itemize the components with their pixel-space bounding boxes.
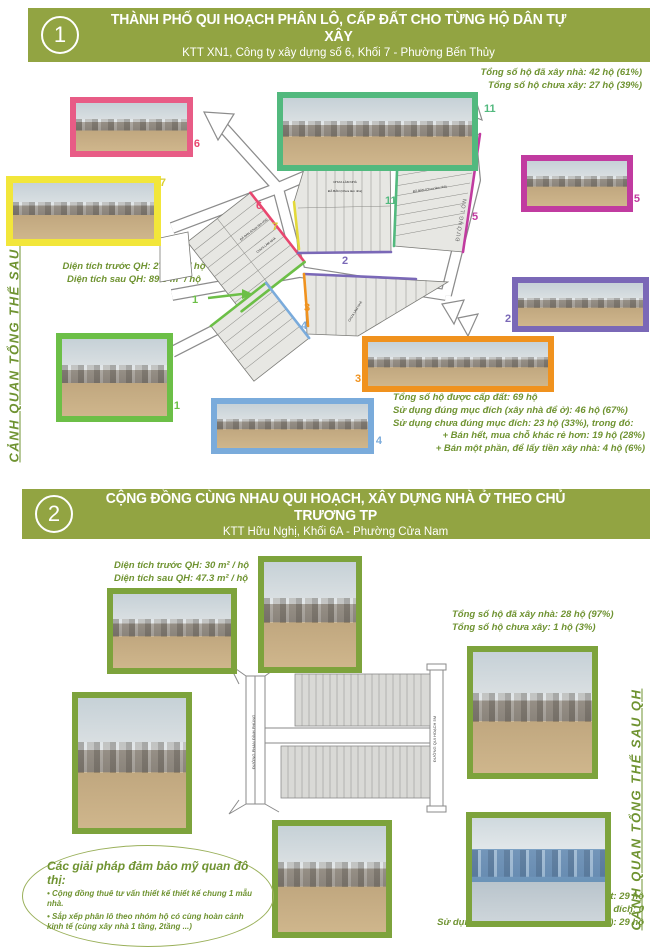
section2-built-stats: Tổng số hộ đã xây nhà: 28 hộ (97%) Tổng … <box>452 609 650 635</box>
photo-5-number: 5 <box>634 194 640 205</box>
photo-6-image <box>76 103 187 151</box>
photo-blue-building <box>466 812 611 927</box>
section1-side-caption: CẢNH QUAN TỔNG THỂ SAU QH <box>7 212 22 472</box>
map-marker-7: 7 <box>272 221 278 233</box>
map-marker-6: 6 <box>256 200 262 212</box>
stat-line: Tổng số hộ chưa xây: 1 hộ (3%) <box>452 622 650 635</box>
photo-11 <box>277 92 478 171</box>
map-marker-11: 11 <box>385 195 397 207</box>
photo-blue-building-image <box>472 818 605 921</box>
photo-6: 6 <box>70 97 193 157</box>
photo-house-before-image <box>113 594 231 668</box>
photo-house-flag-image <box>278 826 386 932</box>
photo-2: 2 <box>512 277 649 332</box>
callout-bullet: Sắp xếp phân lô theo nhóm hộ có cùng hoà… <box>47 912 255 933</box>
diagram-left-road-label: ĐƯỜNG PHAN ĐÌNH PHÙNG <box>251 715 256 769</box>
photo-7-number: 7 <box>160 178 166 189</box>
photo-house-before <box>107 588 237 674</box>
photo-man-balcony-image <box>473 652 592 773</box>
callout-bullet: Cộng đồng thuê tư vấn thiết kế thiết kế … <box>47 889 255 910</box>
section1-built-stats: Tổng số hộ đã xây nhà: 42 hộ (61%) Tổng … <box>380 67 642 93</box>
section1-subtitle: KTT XN1, Công ty xây dựng số 6, Khối 7 -… <box>79 47 598 59</box>
callout-title: Các giải pháp đảm bảo mỹ quan đô thị: <box>47 859 255 887</box>
photo-street-motorbikes <box>258 556 362 673</box>
photo-3: 3 <box>362 336 554 392</box>
photo-man-balcony <box>467 646 598 779</box>
photo-3-image <box>368 342 548 386</box>
section2-number-badge: 2 <box>35 495 73 533</box>
photo-2-image <box>518 283 643 326</box>
map-marker-2: 2 <box>342 255 348 267</box>
photo-3-number: 3 <box>355 374 361 385</box>
photo-4: 4 <box>211 398 374 454</box>
planning-poster: 1 THÀNH PHỐ QUI HOẠCH PHÂN LÔ, CẤP ĐẤT C… <box>0 0 650 952</box>
photo-4-image <box>217 404 368 448</box>
photo-5-image <box>527 161 627 206</box>
map-marker-1: 1 <box>192 294 198 306</box>
map-marker-4: 4 <box>301 320 308 332</box>
section2-site-diagram: ĐƯỜNG PHAN ĐÌNH PHÙNG ĐƯỜNG QUI HOẠCH 5M <box>225 660 465 818</box>
map-marker-5: 5 <box>472 211 478 223</box>
photo-11-image <box>283 98 472 165</box>
lot-label: CHƯA LÀM NHÀ <box>333 180 358 184</box>
photo-7-image <box>13 183 154 239</box>
section1-title: THÀNH PHỐ QUI HOẠCH PHÂN LÔ, CẤP ĐẤT CHO… <box>97 11 580 45</box>
photo-2-number: 2 <box>505 314 511 325</box>
photo-11-number: 11 <box>484 104 496 115</box>
section2-side-caption: CẢNH QUAN TỔNG THỂ SAU QH <box>629 676 644 944</box>
lot-label: ĐÃ BÁN (Chưa làm nhà) <box>328 188 362 193</box>
photo-5: 5 <box>521 155 633 212</box>
photo-1-image <box>62 339 167 416</box>
photo-1-number: 1 <box>174 401 180 412</box>
photo-4-number: 4 <box>376 436 382 447</box>
photo-house-flag <box>272 820 392 938</box>
section2-title: CỘNG ĐỒNG CÙNG NHAU QUI HOẠCH, XÂY DỰNG … <box>91 490 579 524</box>
photo-street-motorbikes-image <box>264 562 356 667</box>
map-marker-3: 3 <box>304 302 310 314</box>
photo-row-houses <box>72 692 192 834</box>
section1-header: 1 THÀNH PHỐ QUI HOẠCH PHÂN LÔ, CẤP ĐẤT C… <box>28 8 650 62</box>
section2-header: 2 CỘNG ĐỒNG CÙNG NHAU QUI HOẠCH, XÂY DỰN… <box>22 489 650 539</box>
stat-line: Tổng số hộ đã xây nhà: 42 hộ (61%) <box>380 67 642 80</box>
stat-line: Tổng số hộ đã xây nhà: 28 hộ (97%) <box>452 609 650 622</box>
photo-1: 1 <box>56 333 173 422</box>
photo-7: 7 <box>6 176 161 246</box>
section2-subtitle: KTT Hữu Nghị, Khối 6A - Phường Cửa Nam <box>73 526 598 538</box>
diagram-right-road-label: ĐƯỜNG QUI HOẠCH 5M <box>432 716 437 762</box>
solutions-callout: Các giải pháp đảm bảo mỹ quan đô thị: Cộ… <box>22 845 274 947</box>
photo-6-number: 6 <box>194 139 200 150</box>
photo-row-houses-image <box>78 698 186 828</box>
section1-number-badge: 1 <box>41 16 79 54</box>
